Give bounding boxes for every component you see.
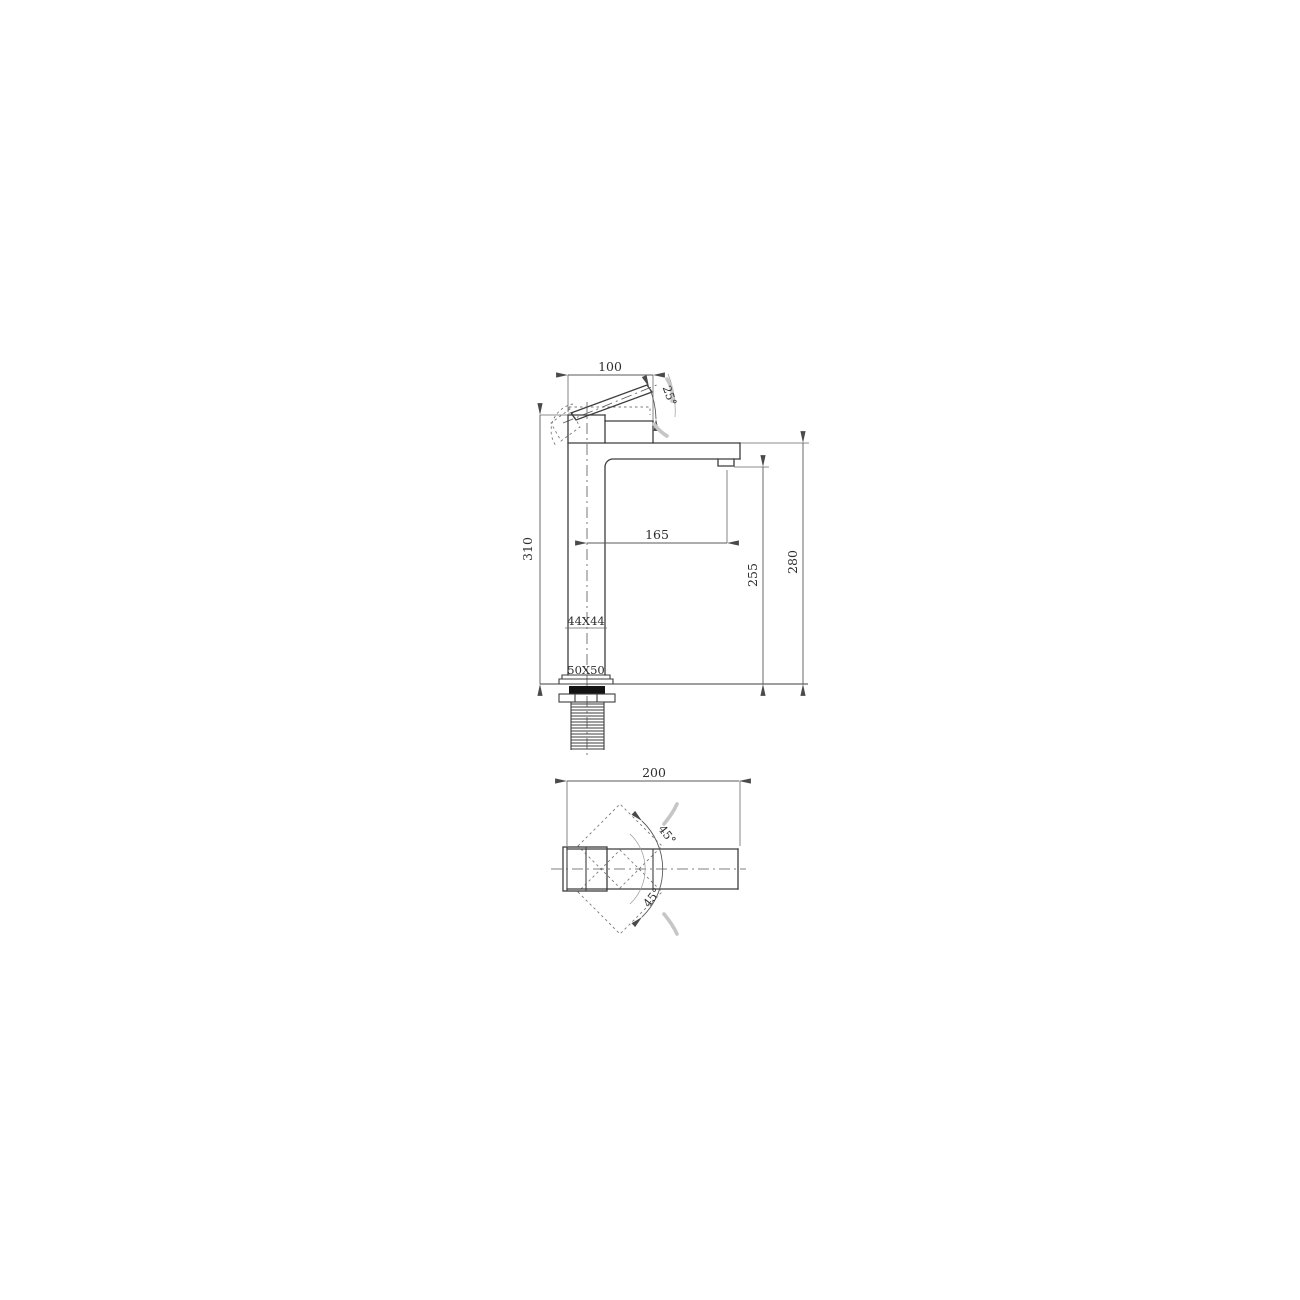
plan-view: 200 45° 45° <box>551 765 746 934</box>
dim-label-165: 165 <box>645 527 669 542</box>
front-view: 100 25° 310 165 255 280 44X44 50X50 <box>520 359 809 758</box>
front-dimension-lines <box>540 374 803 684</box>
drawing-canvas: 100 25° 310 165 255 280 44X44 50X50 <box>0 0 1300 1300</box>
spout-underside <box>605 459 740 675</box>
plan-outline <box>551 847 746 891</box>
mounting-base <box>540 675 808 750</box>
dim-label-200: 200 <box>642 765 666 780</box>
dim-label-50x50: 50X50 <box>567 663 604 677</box>
threaded-tail <box>571 702 604 750</box>
dim-label-310: 310 <box>520 537 535 561</box>
plan-dimension-lines <box>567 781 740 846</box>
base-plate-lower <box>559 679 613 684</box>
dim-label-25deg: 25° <box>660 384 680 408</box>
handle-lever <box>563 384 659 423</box>
handle-centerline <box>563 384 659 423</box>
dim-label-280: 280 <box>785 550 800 574</box>
thread-lines <box>571 704 604 749</box>
dim-label-44x44: 44X44 <box>567 614 604 628</box>
faucet-body-outline <box>568 402 740 758</box>
dim-label-100: 100 <box>598 359 622 374</box>
rubber-gasket <box>569 686 605 694</box>
front-dimension-labels: 100 25° 310 165 255 280 44X44 50X50 <box>520 359 800 677</box>
plan-dimension-labels: 200 45° 45° <box>640 765 679 910</box>
dim-label-255: 255 <box>745 563 760 587</box>
dim-label-45deg-upper: 45° <box>655 822 679 847</box>
aerator <box>718 459 734 466</box>
technical-drawing-svg: 100 25° 310 165 255 280 44X44 50X50 <box>0 0 1300 1300</box>
